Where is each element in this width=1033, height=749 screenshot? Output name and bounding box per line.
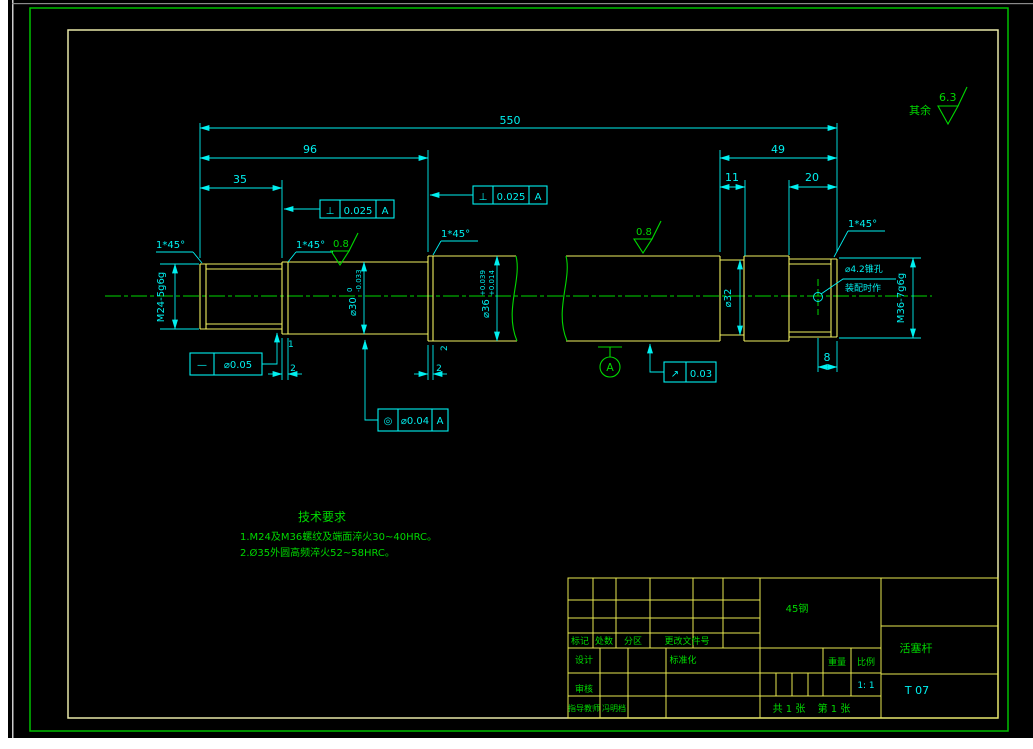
- titleblock-sheet-total: 共 1 张: [773, 703, 806, 715]
- general-roughness-note: 其余 6.3: [909, 87, 967, 124]
- titleblock-col-zone: 分区: [624, 636, 642, 647]
- thread-callout-m24: M24-5g6g: [156, 272, 167, 322]
- dia30-callout: ⌀30: [348, 297, 359, 316]
- svg-text:0.025: 0.025: [497, 192, 526, 203]
- titleblock-col-change-doc: 更改文件号: [664, 635, 709, 647]
- titleblock-part-name: 活塞杆: [900, 641, 933, 655]
- svg-text:0.8: 0.8: [333, 239, 349, 250]
- tech-requirement-2: 2.Ø35外圆高频淬火52~58HRC。: [240, 546, 395, 559]
- titleblock-standardization: 标准化: [669, 654, 696, 666]
- svg-text:A: A: [437, 416, 444, 427]
- dia36-lower-tol: +0.014: [488, 270, 496, 296]
- fcf-runout: ↗ 0.03: [650, 344, 716, 382]
- chamfer-note-4: 1*45°: [848, 219, 877, 230]
- dim-49: 49: [771, 143, 785, 156]
- fcf-perpendicularity-1: ⊥ 0.025 A: [284, 200, 394, 218]
- svg-text:A: A: [382, 206, 389, 217]
- dim-550: 550: [500, 114, 521, 127]
- titleblock-teacher-label: 指导教师: [568, 703, 600, 713]
- chamfer-note-2: 1*45°: [296, 240, 325, 251]
- titleblock-sheet-number: 第 1 张: [818, 702, 851, 715]
- datum-a-symbol: A: [598, 347, 622, 377]
- dim-20: 20: [805, 171, 819, 184]
- titleblock-scale-label: 比例: [857, 656, 875, 668]
- titleblock-scale-value: 1: 1: [857, 681, 874, 691]
- chamfer-note-1: 1*45°: [156, 240, 185, 251]
- dim-2c: 2: [440, 345, 450, 351]
- dim-1: 1: [288, 340, 294, 350]
- svg-text:0.03: 0.03: [690, 369, 712, 380]
- titleblock-teacher-name: 冯明档: [602, 703, 626, 713]
- svg-text:0.025: 0.025: [344, 206, 373, 217]
- break-lines: [512, 256, 567, 341]
- dia32-callout: ⌀32: [723, 289, 734, 308]
- dia36-callout: ⌀36: [481, 299, 492, 318]
- svg-text:⌀0.05: ⌀0.05: [224, 360, 252, 371]
- thread-callout-m36: M36-7g6g: [896, 273, 907, 323]
- centerlines: [105, 279, 932, 315]
- dia36-upper-tol: +0.039: [479, 270, 487, 296]
- general-roughness-label: 其余: [909, 103, 931, 117]
- svg-text:0.8: 0.8: [636, 227, 652, 238]
- svg-text:⌀0.04: ⌀0.04: [401, 416, 429, 427]
- chamfer-note-3: 1*45°: [441, 229, 470, 240]
- tech-requirements-title: 技术要求: [298, 510, 346, 524]
- dia30-upper-tol: 0: [346, 288, 354, 292]
- paper-edges: [0, 0, 1033, 749]
- cad-canvas[interactable]: ⌀4.2锥孔 装配时作 550 96 35 49 11 20: [0, 0, 1033, 749]
- roughness-icon: 0.8: [331, 233, 358, 265]
- svg-text:A: A: [535, 192, 542, 203]
- titleblock-weight-label: 重量: [828, 656, 846, 668]
- fcf-perpendicularity-2: ⊥ 0.025 A: [430, 186, 547, 204]
- dim-8: 8: [824, 351, 831, 364]
- runout-icon: ↗: [671, 369, 679, 380]
- dim-2b: 2: [436, 364, 442, 374]
- straightness-icon: —: [197, 360, 207, 371]
- perpendicularity-icon: ⊥: [479, 192, 488, 203]
- shaft-outline: [200, 256, 837, 341]
- tech-requirements: 技术要求 1.M24及M36螺纹及端面淬火30~40HRC。 2.Ø35外圆高频…: [240, 510, 437, 559]
- fcf-straightness: — ⌀0.05: [190, 333, 277, 375]
- fcf-concentricity: ◎ ⌀0.04 A: [365, 340, 448, 431]
- titleblock-col-mark: 标记: [571, 635, 589, 647]
- taper-hole-note-line2: 装配时作: [845, 282, 881, 294]
- titleblock-drawing-number: T 07: [904, 684, 929, 697]
- roughness-icon: [938, 106, 958, 124]
- titleblock-col-count: 处数: [595, 635, 613, 647]
- titleblock-design: 设计: [575, 654, 593, 666]
- dim-2a: 2: [290, 364, 296, 374]
- cad-viewport: ⌀4.2锥孔 装配时作 550 96 35 49 11 20: [0, 0, 1033, 749]
- taper-hole-note-line1: ⌀4.2锥孔: [845, 263, 883, 275]
- dia30-lower-tol: -0.033: [355, 269, 363, 292]
- titleblock-material: 45钢: [786, 602, 809, 615]
- dim-35: 35: [233, 173, 247, 186]
- extension-lines: [160, 123, 921, 380]
- roughness-icon: 0.8: [634, 221, 661, 253]
- concentricity-icon: ◎: [384, 416, 393, 427]
- gdt-frames: ⊥ 0.025 A ⊥ 0.025 A — ⌀0.05 ◎: [190, 186, 716, 431]
- titleblock-review: 审核: [575, 683, 593, 695]
- dim-11: 11: [725, 171, 739, 184]
- dim-96: 96: [303, 143, 317, 156]
- perpendicularity-icon: ⊥: [326, 206, 335, 217]
- general-roughness-value: 6.3: [939, 91, 957, 104]
- datum-a-label: A: [606, 361, 614, 374]
- roughness-marks: 0.8 0.8 其余 6.3: [331, 87, 967, 265]
- title-block: 标记 处数 分区 更改文件号 设计 标准化 审核 指导教师 冯明档 45钢 重量…: [568, 578, 998, 718]
- tech-requirement-1: 1.M24及M36螺纹及端面淬火30~40HRC。: [240, 530, 437, 543]
